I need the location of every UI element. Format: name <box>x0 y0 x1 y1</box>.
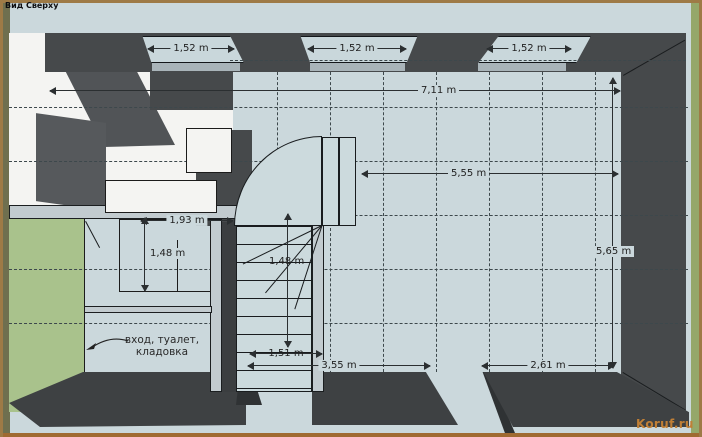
grid-line-vertical <box>489 72 490 372</box>
stair-tread <box>237 371 311 389</box>
stair-side-face <box>222 222 236 392</box>
dim-overall-width: 7,11 m <box>50 90 620 91</box>
frame-border-left <box>0 0 3 437</box>
dim-main-room-width: 5,55 m <box>362 173 618 174</box>
stair-top-tread-2 <box>339 137 356 226</box>
toilet-partition-wall <box>84 306 212 313</box>
dim-window-center: 1,52 m <box>308 48 406 49</box>
dim-label: 7,11 m <box>418 85 459 96</box>
dim-label: 1,51 m <box>265 348 306 359</box>
right-wall <box>621 33 686 414</box>
grid-line-vertical <box>383 72 384 372</box>
dim-closet-depth: 1,48 m <box>144 218 145 291</box>
view-label: Вид Сверху <box>5 1 58 10</box>
stair-tread <box>237 299 311 317</box>
dim-label: 1,52 m <box>170 43 211 54</box>
dim-stair-width: 1,51 m <box>250 353 322 354</box>
grid-line-horizontal <box>9 269 688 270</box>
dim-window-right: 1,52 m <box>487 48 571 49</box>
dim-label: 1,48 m <box>147 248 188 259</box>
grid-line-horizontal <box>9 323 688 324</box>
dim-label: 1,52 m <box>336 43 377 54</box>
dim-closet-width: 1,93 m <box>141 220 233 221</box>
grid-line-vertical <box>542 72 543 372</box>
dim-label: 1,93 m <box>166 215 207 226</box>
sketchup-top-view: 1,52 m 1,52 m 1,52 m 7,11 m 5,55 m 5,65 … <box>0 0 702 437</box>
frame-border-top <box>0 0 702 3</box>
window-sill-center <box>310 62 405 71</box>
leader-arrow <box>84 336 130 354</box>
dim-label: 1,52 m <box>508 43 549 54</box>
cabinet-box-upper <box>186 128 232 173</box>
grid-line-vertical <box>436 72 437 372</box>
dim-bottom-left-span: 3,55 m <box>248 365 430 366</box>
stair-top-tread-1 <box>322 137 339 226</box>
grid-line-horizontal <box>9 107 688 108</box>
dim-bottom-right-span: 2,61 m <box>482 365 614 366</box>
watermark: Koruf.ru <box>636 417 694 431</box>
dim-label: 3,55 m <box>318 360 359 371</box>
furniture-slab-lower-left <box>36 113 106 211</box>
window-sill-left <box>152 62 240 71</box>
cabinet-box-lower <box>105 180 217 213</box>
frame-border-bottom <box>0 433 702 437</box>
grid-line-vertical <box>595 72 596 372</box>
dim-label: 5,65 m <box>593 246 634 257</box>
dim-window-left: 1,52 m <box>148 48 234 49</box>
dim-label: 2,61 m <box>527 360 568 371</box>
right-edge-strip <box>691 3 699 433</box>
dim-label: 5,55 m <box>448 168 489 179</box>
dim-label: 1,48 m <box>266 256 307 267</box>
dim-stair-flight: 1,48 m <box>287 214 288 347</box>
stair-tread <box>237 317 311 335</box>
grid-line-horizontal <box>230 60 686 61</box>
dim-main-room-depth: 5,65 m <box>612 78 613 368</box>
window-sill-right <box>478 62 566 71</box>
